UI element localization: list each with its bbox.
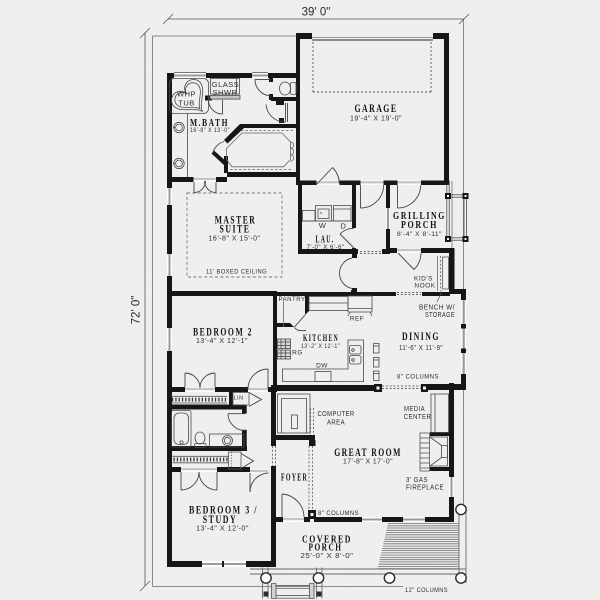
svg-text:11' BOXED CEILING: 11' BOXED CEILING xyxy=(206,269,267,276)
svg-text:RG: RG xyxy=(292,350,303,357)
svg-text:BEDROOM 2: BEDROOM 2 xyxy=(193,327,253,339)
svg-text:3' GAS: 3' GAS xyxy=(406,477,428,484)
svg-text:8'-4" X 8'-11": 8'-4" X 8'-11" xyxy=(397,231,442,238)
svg-text:TUB: TUB xyxy=(178,99,195,108)
svg-text:39' 0": 39' 0" xyxy=(302,7,331,19)
svg-text:STORAGE: STORAGE xyxy=(425,312,455,319)
svg-text:13'-2" X 12'-1": 13'-2" X 12'-1" xyxy=(301,343,340,350)
svg-text:FOYER: FOYER xyxy=(281,473,308,484)
svg-text:13'-4" X 12'-0": 13'-4" X 12'-0" xyxy=(196,524,249,533)
svg-text:WHP: WHP xyxy=(177,90,196,99)
svg-text:PANTRY: PANTRY xyxy=(279,296,306,303)
svg-text:7'-0" X 6'-6": 7'-0" X 6'-6" xyxy=(307,244,345,251)
svg-text:8" COLUMNS: 8" COLUMNS xyxy=(318,510,359,517)
svg-text:8" COLUMNS: 8" COLUMNS xyxy=(397,374,439,381)
svg-text:13'-4" X 12'-1": 13'-4" X 12'-1" xyxy=(196,338,248,345)
svg-text:COMPUTER: COMPUTER xyxy=(318,411,355,418)
svg-text:LIN: LIN xyxy=(233,396,243,402)
svg-text:16'-8" X 13'-0": 16'-8" X 13'-0" xyxy=(190,128,230,134)
svg-text:FIREPLACE: FIREPLACE xyxy=(406,485,444,492)
svg-text:19'-4" X 19'-0": 19'-4" X 19'-0" xyxy=(350,114,402,123)
svg-text:REF: REF xyxy=(350,316,365,323)
svg-text:W: W xyxy=(319,221,327,230)
svg-text:12" COLUMNS: 12" COLUMNS xyxy=(405,587,448,594)
svg-text:16'-8" X 15'-0": 16'-8" X 15'-0" xyxy=(209,236,261,243)
svg-text:DINING: DINING xyxy=(402,331,440,343)
svg-text:PORCH: PORCH xyxy=(401,219,438,231)
svg-text:BENCH W/: BENCH W/ xyxy=(419,305,455,312)
svg-text:17'-8" X 17'-0": 17'-8" X 17'-0" xyxy=(343,457,393,466)
svg-text:11'-6" X 11'-9": 11'-6" X 11'-9" xyxy=(399,345,443,352)
svg-text:NOOK: NOOK xyxy=(414,283,435,290)
svg-text:SUITE: SUITE xyxy=(220,224,251,236)
svg-text:AREA: AREA xyxy=(327,420,345,427)
svg-text:SHWR: SHWR xyxy=(213,88,238,97)
svg-text:KID'S: KID'S xyxy=(414,276,433,283)
svg-text:MEDIA: MEDIA xyxy=(404,406,425,413)
svg-text:72' 0": 72' 0" xyxy=(131,296,143,325)
svg-text:D: D xyxy=(341,222,347,231)
svg-text:DW: DW xyxy=(316,363,328,370)
svg-text:25'-0" X 8'-0": 25'-0" X 8'-0" xyxy=(301,551,354,560)
svg-text:CENTER: CENTER xyxy=(404,414,432,421)
